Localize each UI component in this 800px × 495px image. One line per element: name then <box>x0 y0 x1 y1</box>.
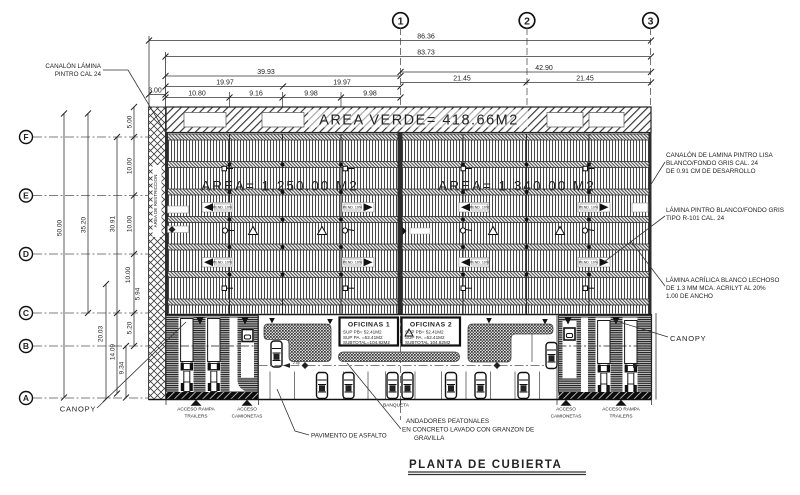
svg-text:86.36: 86.36 <box>417 34 435 41</box>
svg-text:D: D <box>23 249 29 259</box>
svg-text:ACCESO RAMPA: ACCESO RAMPA <box>177 407 215 412</box>
svg-text:10.00: 10.00 <box>127 157 134 174</box>
svg-text:ACCESO RAMPA: ACCESO RAMPA <box>602 407 640 412</box>
svg-text:AREA DE RESTRICCION: AREA DE RESTRICCION <box>153 175 158 228</box>
svg-text:39.93: 39.93 <box>257 69 275 76</box>
svg-text:5.94: 5.94 <box>135 287 142 300</box>
svg-text:AREA= 1,340.00 M2: AREA= 1,340.00 M2 <box>438 179 595 194</box>
svg-text:BANQUETA: BANQUETA <box>383 403 410 409</box>
svg-text:SUBTOTAL 104.82M2: SUBTOTAL 104.82M2 <box>405 340 451 345</box>
svg-text:AREA= 1,250.00 M2: AREA= 1,250.00 M2 <box>201 179 358 194</box>
svg-text:SUP PB= 52.41M2: SUP PB= 52.41M2 <box>343 330 382 335</box>
svg-text:CANOPY: CANOPY <box>670 334 706 343</box>
svg-text:30.91: 30.91 <box>110 215 117 232</box>
svg-text:35.20: 35.20 <box>81 216 88 233</box>
svg-text:ANDADORES PEATONALES: ANDADORES PEATONALES <box>406 418 489 425</box>
svg-text:TRAILERS: TRAILERS <box>185 414 208 419</box>
svg-text:2: 2 <box>524 15 530 27</box>
svg-text:PEND. 10%: PEND. 10% <box>470 206 490 210</box>
svg-text:CAMIONETAS: CAMIONETAS <box>551 414 582 419</box>
svg-text:PEND. 10%: PEND. 10% <box>343 206 363 210</box>
svg-text:19.97: 19.97 <box>216 80 234 87</box>
svg-text:83.73: 83.73 <box>417 50 435 57</box>
svg-text:PEND. 10%: PEND. 10% <box>213 261 233 265</box>
svg-text:10.00: 10.00 <box>125 266 132 283</box>
svg-text:42.90: 42.90 <box>535 65 553 72</box>
svg-text:21.45: 21.45 <box>453 76 471 83</box>
svg-text:ACCESO: ACCESO <box>237 407 257 412</box>
svg-text:5.20: 5.20 <box>127 321 134 334</box>
svg-text:C: C <box>23 308 29 318</box>
svg-text:ACCESO: ACCESO <box>556 407 576 412</box>
svg-text:PEND. 10%: PEND. 10% <box>343 261 363 265</box>
svg-text:DE 0.91 CM DE DESARROLLO: DE 0.91 CM DE DESARROLLO <box>666 168 756 175</box>
svg-text:SUP PB= 52.41M2: SUP PB= 52.41M2 <box>405 330 444 335</box>
svg-text:TRAILERS: TRAILERS <box>610 414 633 419</box>
svg-text:5.00: 5.00 <box>127 115 134 128</box>
svg-text:DE 1.3 MM MCA. ACRILYT AL 20%: DE 1.3 MM MCA. ACRILYT AL 20% <box>666 285 766 292</box>
svg-text:PEND. 10%: PEND. 10% <box>579 261 599 265</box>
svg-text:PEND. 10%: PEND. 10% <box>470 261 490 265</box>
svg-text:PAVIMENTO DE ASFALTO: PAVIMENTO DE ASFALTO <box>311 433 387 440</box>
svg-text:A: A <box>23 393 29 403</box>
svg-text:BLANCO/FONDO GRIS CAL. 24: BLANCO/FONDO GRIS CAL. 24 <box>666 160 759 167</box>
svg-text:1: 1 <box>398 15 404 27</box>
svg-text:14.09: 14.09 <box>110 343 117 360</box>
svg-text:9.34: 9.34 <box>119 361 126 374</box>
svg-text:21.45: 21.45 <box>576 76 594 83</box>
svg-text:LÁMINA ACRÍLICA BLANCO LECHOS: LÁMINA ACRÍLICA BLANCO LECHOSO <box>666 275 779 284</box>
svg-text:CAMIONETAS: CAMIONETAS <box>232 414 263 419</box>
svg-text:20.03: 20.03 <box>98 325 105 342</box>
svg-text:2.5p: 2.5p <box>293 361 300 365</box>
svg-text:3: 3 <box>648 15 654 27</box>
svg-text:50.00: 50.00 <box>57 219 64 236</box>
svg-text:OFICINAS 1: OFICINAS 1 <box>348 322 390 329</box>
svg-text:CANALÓN DE LAMINA PINTRO LISA: CANALÓN DE LAMINA PINTRO LISA <box>666 150 774 159</box>
svg-text:LÁMINA PINTRO BLANCO/FONDO GR: LÁMINA PINTRO BLANCO/FONDO GRIS <box>666 205 784 214</box>
svg-text:EN CONCRETO LAVADO CON GRANZON: EN CONCRETO LAVADO CON GRANZON DE <box>402 427 534 434</box>
svg-text:PEND. 10%: PEND. 10% <box>213 206 233 210</box>
svg-text:19.97: 19.97 <box>333 80 351 87</box>
svg-text:GRAVILLA: GRAVILLA <box>414 435 445 442</box>
svg-text:B: B <box>23 341 29 351</box>
svg-text:E: E <box>23 191 29 201</box>
svg-text:PEND. 10%: PEND. 10% <box>579 206 599 210</box>
svg-text:9.98: 9.98 <box>304 91 318 98</box>
svg-text:AREA VERDE= 418.66M2: AREA VERDE= 418.66M2 <box>319 113 519 129</box>
svg-text:10.00: 10.00 <box>127 215 134 232</box>
svg-text:PINTRO CAL 24: PINTRO CAL 24 <box>55 71 102 78</box>
svg-text:F: F <box>23 132 28 142</box>
svg-text:PLANTA DE CUBIERTA: PLANTA DE CUBIERTA <box>409 459 562 471</box>
svg-text:CANOPY: CANOPY <box>60 405 96 414</box>
svg-text:OFICINAS 2: OFICINAS 2 <box>410 322 452 329</box>
svg-text:SUBTOTAL=104.82M2: SUBTOTAL=104.82M2 <box>343 340 390 345</box>
svg-text:TIPO R-101 CAL. 24: TIPO R-101 CAL. 24 <box>666 215 725 222</box>
svg-text:3.00: 3.00 <box>148 88 162 95</box>
svg-text:10.80: 10.80 <box>188 91 206 98</box>
svg-text:9.16: 9.16 <box>249 91 263 98</box>
svg-text:1.00 DE ANCHO: 1.00 DE ANCHO <box>666 293 713 300</box>
svg-text:9.98: 9.98 <box>363 91 377 98</box>
svg-text:CANALÓN LÁMINA: CANALÓN LÁMINA <box>45 61 101 70</box>
